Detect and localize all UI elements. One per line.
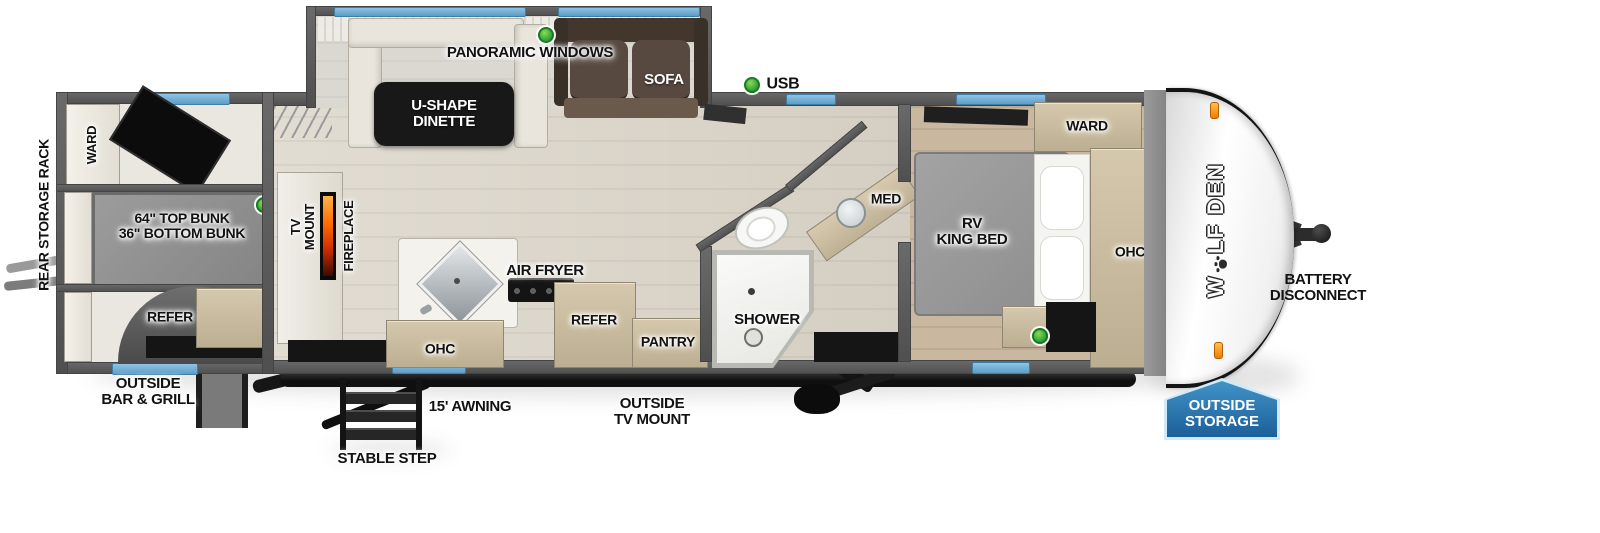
shower-head-icon [744, 328, 763, 347]
outside-tv-mount-label: OUTSIDE TV MOUNT [614, 396, 690, 428]
pantry-label: PANTRY [641, 335, 695, 350]
bedroom-ohc-label: OHC [1115, 245, 1145, 260]
rear-storage-rack-label: REAR STORAGE RACK [37, 139, 52, 291]
window [786, 94, 836, 105]
bunk-refer-cabinet [196, 288, 268, 348]
bath-sink [836, 198, 866, 228]
trailer-nose [1166, 88, 1294, 388]
window [558, 7, 700, 17]
bunk-ward-label: WARD [85, 126, 99, 165]
window [956, 94, 1046, 105]
rear-rack-bar [4, 276, 63, 291]
bedroom-wall [898, 104, 911, 182]
step-tread [346, 392, 416, 404]
outside-bar-grill-label: OUTSIDE BAR & GRILL [101, 376, 194, 408]
usb-label: USB [767, 75, 800, 92]
outside-storage-label: OUTSIDE STORAGE [1185, 398, 1259, 430]
pillow [1040, 236, 1084, 300]
shower-drain [748, 288, 755, 295]
fireplace-label: FIREPLACE [342, 201, 356, 272]
brand-logo-w: W [1203, 275, 1229, 298]
step-tread [346, 410, 416, 422]
battery-disconnect-label: BATTERY DISCONNECT [1270, 272, 1366, 304]
bunk-refer-label: REFER [147, 310, 193, 325]
bunk-size-label: 64" TOP BUNK 36" BOTTOM BUNK [119, 211, 245, 241]
dinette-label: U-SHAPE DINETTE [411, 98, 476, 130]
stable-step-label: STABLE STEP [338, 451, 437, 467]
door-swing-hatch [274, 106, 332, 138]
brand-logo-lfden: LF DEN [1203, 162, 1229, 253]
rear-rack-bar [6, 255, 61, 273]
bath-vanity [814, 332, 900, 362]
med-label: MED [871, 192, 901, 207]
bunk-closet [64, 292, 92, 362]
awning-label: 15' AWNING [429, 399, 512, 415]
marker-light-icon [1214, 342, 1223, 359]
living-counter [288, 340, 398, 362]
window [334, 7, 526, 17]
window [112, 363, 198, 375]
bedroom-chest [1046, 302, 1096, 352]
king-bed-label: RV KING BED [937, 216, 1008, 248]
panoramic-windows-label: PANORAMIC WINDOWS [447, 45, 613, 61]
outside-bar-grill-slide [196, 368, 248, 428]
main-wall-left [262, 92, 274, 374]
brand-logo: W LF DEN [1203, 162, 1229, 297]
tv-mount-label: TV MOUNT [289, 204, 317, 250]
bedroom-wall [898, 242, 911, 362]
sofa-back [554, 18, 708, 42]
marker-light-icon [1210, 102, 1219, 119]
sofa-front [564, 98, 698, 118]
paw-print-icon [1212, 257, 1227, 272]
sink-drain [454, 278, 460, 284]
led-indicator-icon [538, 27, 554, 43]
slideout-wall-left [306, 6, 316, 108]
rv-floorplan: WARD 64" TOP BUNK 36" BOTTOM BUNK REFER … [0, 0, 1600, 533]
step-rail [416, 378, 422, 450]
sofa-label: SOFA [644, 72, 684, 88]
window [972, 362, 1030, 374]
fireplace-flame [323, 196, 333, 276]
shower-label: SHOWER [734, 312, 800, 328]
kitchen-refer-label: REFER [571, 313, 617, 328]
bedroom-ward-label: WARD [1066, 119, 1108, 134]
sofa-arm [554, 18, 568, 106]
kitchen-ohc-label: OHC [425, 342, 455, 357]
sofa-arm [694, 18, 708, 106]
hitch-coupler [1312, 224, 1331, 243]
led-indicator-icon [744, 77, 760, 93]
pillow [1040, 166, 1084, 230]
led-indicator-icon [1032, 328, 1048, 344]
step-tread [346, 428, 416, 440]
air-fryer-label: AIR FRYER [506, 263, 584, 279]
bunk-closet [64, 192, 92, 284]
bunk-wall-divider [56, 184, 270, 192]
outside-tv-base [794, 384, 840, 414]
bath-wall [700, 246, 712, 362]
